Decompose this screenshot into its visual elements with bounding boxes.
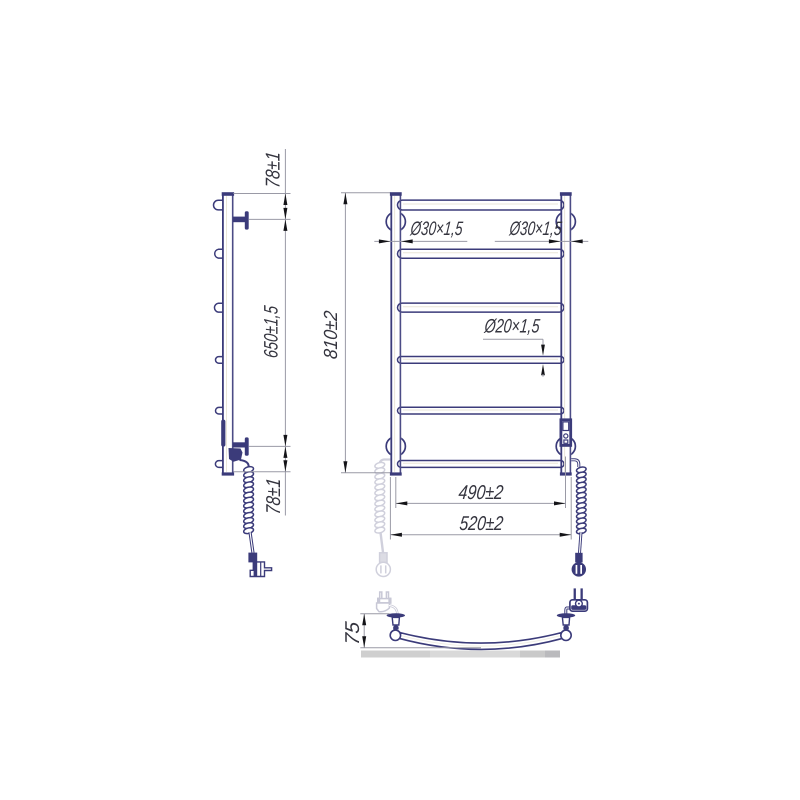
- svg-text:650±1,5: 650±1,5: [261, 305, 283, 359]
- svg-text:75: 75: [342, 620, 364, 646]
- svg-text:Ø20×1,5: Ø20×1,5: [483, 315, 541, 337]
- svg-text:810±2: 810±2: [321, 309, 342, 360]
- svg-text:490±2: 490±2: [457, 482, 504, 504]
- svg-text:78±1: 78±1: [263, 477, 285, 515]
- svg-text:Ø30×1,5: Ø30×1,5: [508, 218, 563, 240]
- svg-text:78±1: 78±1: [263, 151, 285, 189]
- svg-text:Ø30×1,5: Ø30×1,5: [409, 218, 464, 240]
- svg-text:520±2: 520±2: [458, 513, 504, 535]
